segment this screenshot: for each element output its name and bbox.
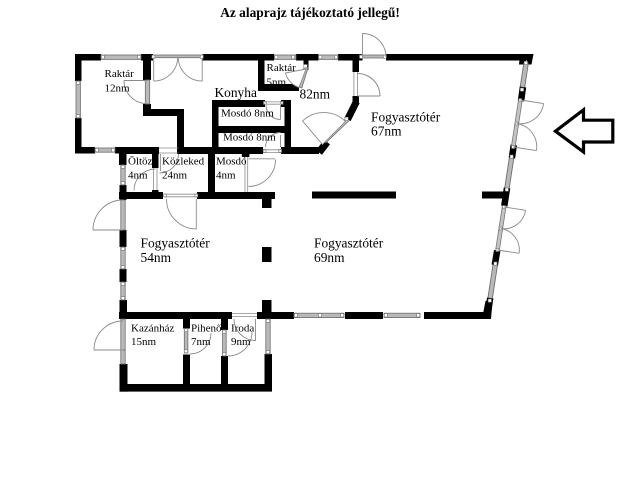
svg-text:Fogyasztótér: Fogyasztótér [371, 110, 441, 125]
svg-text:24nm: 24nm [162, 170, 188, 182]
svg-text:4nm: 4nm [216, 170, 236, 182]
svg-text:12nm: 12nm [105, 83, 131, 95]
svg-text:Iroda: Iroda [231, 323, 254, 335]
svg-text:Mosdó 8nm: Mosdó 8nm [223, 132, 276, 144]
svg-text:Öltöző: Öltöző [128, 156, 158, 168]
svg-text:Pihenő: Pihenő [191, 323, 222, 335]
svg-text:Fogyasztótér: Fogyasztótér [141, 236, 211, 251]
svg-text:82nm: 82nm [300, 87, 331, 102]
svg-text:4nm: 4nm [128, 170, 148, 182]
svg-text:67nm: 67nm [371, 124, 402, 139]
svg-text:Raktár: Raktár [105, 68, 135, 80]
svg-text:Mosdó: Mosdó [216, 156, 247, 168]
svg-text:7nm: 7nm [191, 336, 211, 348]
svg-text:Konyha: Konyha [215, 85, 257, 100]
svg-text:Raktár: Raktár [267, 62, 297, 74]
svg-text:69nm: 69nm [314, 250, 345, 265]
svg-text:5nm: 5nm [267, 77, 287, 89]
svg-text:Fogyasztótér: Fogyasztótér [314, 236, 384, 251]
svg-text:9nm: 9nm [231, 336, 251, 348]
svg-text:Közleked: Közleked [162, 156, 205, 168]
svg-text:Kazánház: Kazánház [131, 323, 174, 335]
svg-text:15nm: 15nm [131, 336, 157, 348]
svg-text:Az alaprajz tájékoztató jelleg: Az alaprajz tájékoztató jellegű! [220, 5, 400, 20]
svg-text:54nm: 54nm [141, 250, 172, 265]
svg-text:Mosdó 8nm: Mosdó 8nm [221, 108, 274, 120]
